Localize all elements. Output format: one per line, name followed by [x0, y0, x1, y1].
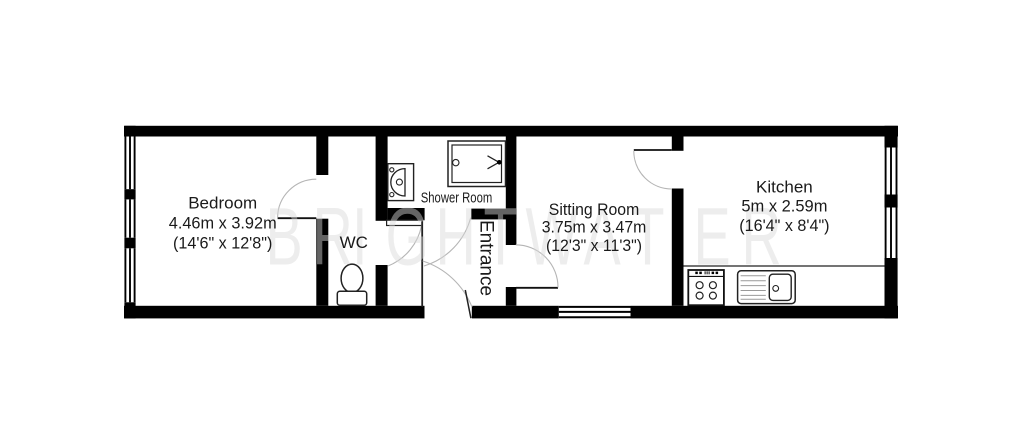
svg-text:(14'6" x 12'8"): (14'6" x 12'8"): [173, 233, 272, 252]
svg-text:Shower Room: Shower Room: [421, 189, 493, 206]
svg-text:4.46m x 3.92m: 4.46m x 3.92m: [169, 213, 277, 232]
svg-text:Entrance: Entrance: [476, 220, 497, 296]
svg-text:5m x 2.59m: 5m x 2.59m: [741, 196, 827, 215]
svg-text:Kitchen: Kitchen: [756, 177, 813, 196]
svg-text:Bedroom: Bedroom: [188, 194, 257, 213]
svg-text:WC: WC: [340, 233, 368, 252]
svg-text:Sitting Room: Sitting Room: [549, 200, 639, 219]
svg-text:(12'3" x 11'3"): (12'3" x 11'3"): [546, 237, 642, 256]
svg-text:3.75m x 3.47m: 3.75m x 3.47m: [542, 218, 647, 237]
svg-text:E: E: [694, 191, 731, 282]
svg-text:(16'4" x 8'4"): (16'4" x 8'4"): [739, 216, 829, 235]
